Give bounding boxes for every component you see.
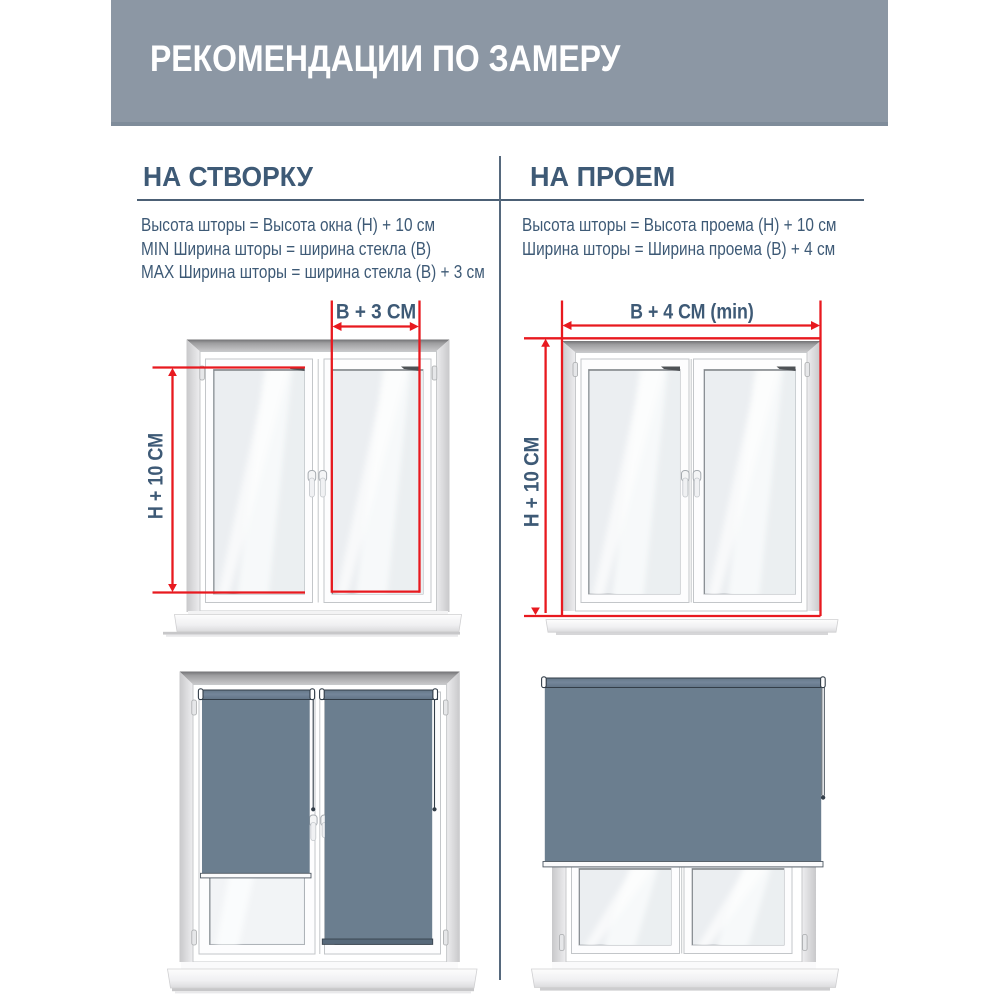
- svg-text:B + 4 СМ (min): B + 4 СМ (min): [630, 300, 754, 324]
- svg-text:H + 10 СМ: H + 10 СМ: [144, 433, 168, 519]
- svg-text:H + 10 СМ: H + 10 СМ: [521, 437, 544, 527]
- svg-text:B + 3 СМ: B + 3 СМ: [336, 300, 416, 323]
